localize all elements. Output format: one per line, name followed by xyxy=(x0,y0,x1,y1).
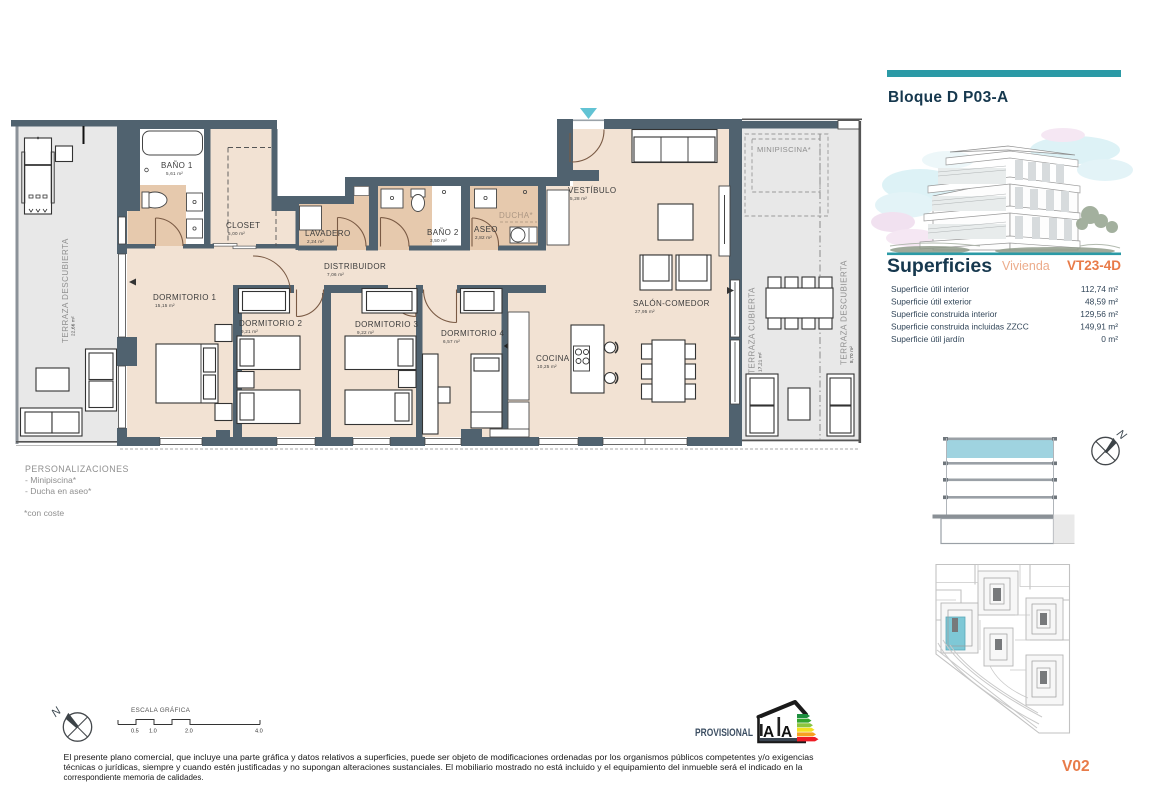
svg-text:0.5: 0.5 xyxy=(131,729,139,735)
svg-text:V02: V02 xyxy=(1062,758,1090,775)
svg-text:10,25 m²: 10,25 m² xyxy=(537,364,557,369)
svg-text:2.0: 2.0 xyxy=(185,729,193,735)
svg-text:9,21 m²: 9,21 m² xyxy=(241,329,258,334)
svg-text:El presente plano comercial, q: El presente plano comercial, que incluye… xyxy=(64,753,814,762)
svg-text:DORMITORIO 2: DORMITORIO 2 xyxy=(239,319,302,328)
svg-text:PROVISIONAL: PROVISIONAL xyxy=(695,727,753,739)
svg-text:5,28 m²: 5,28 m² xyxy=(570,196,587,201)
svg-text:TERRAZA CUBIERTA: TERRAZA CUBIERTA xyxy=(748,287,757,374)
svg-text:5,00 m²: 5,00 m² xyxy=(228,231,245,236)
svg-text:2,82 m²: 2,82 m² xyxy=(475,235,492,240)
svg-text:COCINA: COCINA xyxy=(536,354,570,363)
svg-text:técnicas o jurídicas, siempre: técnicas o jurídicas, siempre y cuando e… xyxy=(64,763,804,772)
svg-text:129,56 m²: 129,56 m² xyxy=(1080,309,1118,319)
svg-text:Superficie construida interior: Superficie construida interior xyxy=(891,309,997,319)
svg-text:A: A xyxy=(763,724,775,741)
svg-text:LAVADERO: LAVADERO xyxy=(305,229,351,238)
svg-text:BAÑO 1: BAÑO 1 xyxy=(161,161,193,170)
svg-text:VESTÍBULO: VESTÍBULO xyxy=(568,186,617,195)
svg-text:DORMITORIO 3: DORMITORIO 3 xyxy=(355,320,418,329)
svg-text:TERRAZA DESCUBIERTA: TERRAZA DESCUBIERTA xyxy=(61,238,70,343)
svg-text:Superficie construida incluida: Superficie construida incluidas ZZCC xyxy=(891,322,1029,332)
svg-text:BAÑO 2: BAÑO 2 xyxy=(427,228,459,237)
svg-text:DORMITORIO 1: DORMITORIO 1 xyxy=(153,293,216,302)
svg-text:CLOSET: CLOSET xyxy=(226,221,260,230)
svg-text:DUCHA*: DUCHA* xyxy=(499,211,533,220)
svg-text:2,24 m²: 2,24 m² xyxy=(307,239,324,244)
svg-text:ASEO: ASEO xyxy=(474,225,498,234)
svg-text:22,66 m²: 22,66 m² xyxy=(71,316,76,336)
svg-text:- Ducha en aseo*: - Ducha en aseo* xyxy=(25,486,92,496)
svg-text:*con coste: *con coste xyxy=(24,508,64,518)
svg-text:A: A xyxy=(781,724,793,741)
svg-text:17,21 m²: 17,21 m² xyxy=(758,352,763,372)
svg-text:Superficies: Superficies xyxy=(887,255,992,277)
svg-text:7,06 m²: 7,06 m² xyxy=(327,272,344,277)
svg-text:48,59 m²: 48,59 m² xyxy=(1085,297,1118,307)
svg-text:149,91 m²: 149,91 m² xyxy=(1080,322,1118,332)
svg-text:SALÓN-COMEDOR: SALÓN-COMEDOR xyxy=(633,299,710,308)
svg-text:15,15 m²: 15,15 m² xyxy=(155,303,175,308)
svg-text:Superficie útil interior: Superficie útil interior xyxy=(891,284,969,294)
svg-text:Bloque D P03-A: Bloque D P03-A xyxy=(888,89,1008,106)
svg-text:0 m²: 0 m² xyxy=(1101,334,1118,344)
svg-text:DISTRIBUIDOR: DISTRIBUIDOR xyxy=(324,262,386,271)
svg-text:ESCALA GRÁFICA: ESCALA GRÁFICA xyxy=(131,705,191,714)
svg-text:TERRAZA DESCUBIERTA: TERRAZA DESCUBIERTA xyxy=(840,260,849,365)
svg-text:Superficie útil jardín: Superficie útil jardín xyxy=(891,334,965,344)
svg-text:DORMITORIO 4: DORMITORIO 4 xyxy=(441,329,504,338)
svg-text:27,95 m²: 27,95 m² xyxy=(635,309,655,314)
svg-text:Vivienda: Vivienda xyxy=(1002,259,1050,273)
svg-text:112,74 m²: 112,74 m² xyxy=(1081,284,1118,294)
svg-text:6,57 m²: 6,57 m² xyxy=(443,339,460,344)
svg-text:1.0: 1.0 xyxy=(149,729,157,735)
svg-text:8,70 m²: 8,70 m² xyxy=(849,346,854,363)
svg-text:Superficie útil exterior: Superficie útil exterior xyxy=(891,297,972,307)
svg-text:MINIPISCINA*: MINIPISCINA* xyxy=(757,145,811,154)
svg-text:correspondiente memoria de cal: correspondiente memoria de calidades. xyxy=(64,773,204,782)
svg-text:9,22 m²: 9,22 m² xyxy=(357,330,374,335)
svg-text:VT23-4D: VT23-4D xyxy=(1067,258,1121,273)
svg-text:5,61 m²: 5,61 m² xyxy=(166,171,183,176)
svg-text:- Minipiscina*: - Minipiscina* xyxy=(25,475,77,485)
svg-text:4.0: 4.0 xyxy=(255,729,263,735)
svg-text:PERSONALIZACIONES: PERSONALIZACIONES xyxy=(25,464,129,474)
svg-text:3,50 m²: 3,50 m² xyxy=(430,238,447,243)
